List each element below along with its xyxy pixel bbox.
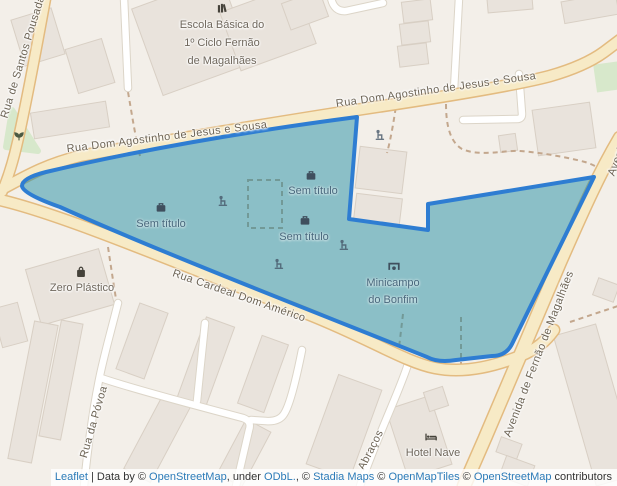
attribution-link[interactable]: OpenStreetMap (474, 471, 552, 483)
attribution-text: | Data by © (88, 471, 149, 483)
attribution-link[interactable]: OpenMapTiles (388, 471, 459, 483)
attribution-bar: Leaflet | Data by © OpenStreetMap, under… (51, 469, 617, 486)
attribution-link[interactable]: OpenStreetMap (149, 471, 227, 483)
attribution-text: © (374, 471, 388, 483)
attribution-link[interactable]: Leaflet (55, 471, 88, 483)
playground-icon (376, 130, 383, 139)
map-tiles (0, 0, 617, 486)
attribution-text: , under (227, 471, 264, 483)
attribution-link[interactable]: ODbL. (264, 471, 296, 483)
attribution-text: contributors (551, 471, 612, 483)
attribution-text: , © (296, 471, 313, 483)
map-viewport[interactable]: Rua de Santos Pousada Rua Dom Agostinho … (0, 0, 617, 486)
attribution-text: © (460, 471, 474, 483)
attribution-link[interactable]: Stadia Maps (313, 471, 374, 483)
